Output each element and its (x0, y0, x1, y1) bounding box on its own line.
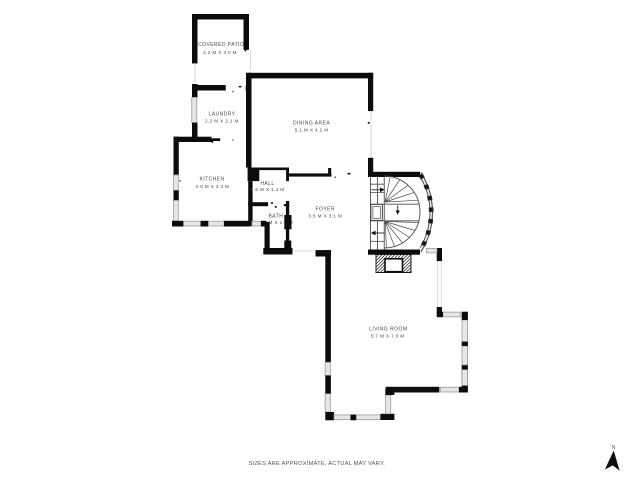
svg-text:1.5 M X 1.4 M: 1.5 M X 1.4 M (251, 187, 285, 192)
svg-text:LIVING ROOM: LIVING ROOM (369, 326, 407, 332)
svg-text:KITCHEN: KITCHEN (199, 176, 224, 182)
svg-text:N: N (612, 445, 616, 451)
svg-text:BATH: BATH (269, 214, 284, 220)
svg-text:3.0 M X 3.4 M: 3.0 M X 3.4 M (196, 184, 230, 189)
svg-text:5.7 M X 7.0 M: 5.7 M X 7.0 M (371, 333, 405, 338)
svg-text:LAUNDRY: LAUNDRY (209, 111, 236, 117)
svg-text:COVERED PATIO: COVERED PATIO (198, 42, 244, 48)
svg-text:SIZES ARE APPROXIMATE, ACTUAL: SIZES ARE APPROXIMATE, ACTUAL MAY VARY. (249, 461, 386, 467)
svg-text:DINING AREA: DINING AREA (293, 121, 330, 127)
svg-text:2.2 M X 3.0 M: 2.2 M X 3.0 M (203, 50, 237, 55)
svg-text:2.2 M X 2.1 M: 2.2 M X 2.1 M (205, 119, 239, 124)
svg-text:5.1 M X 4.2 M: 5.1 M X 4.2 M (295, 127, 329, 132)
svg-text:3.5 M X 3.1 M: 3.5 M X 3.1 M (308, 213, 342, 218)
svg-text:FOYER: FOYER (316, 206, 335, 212)
